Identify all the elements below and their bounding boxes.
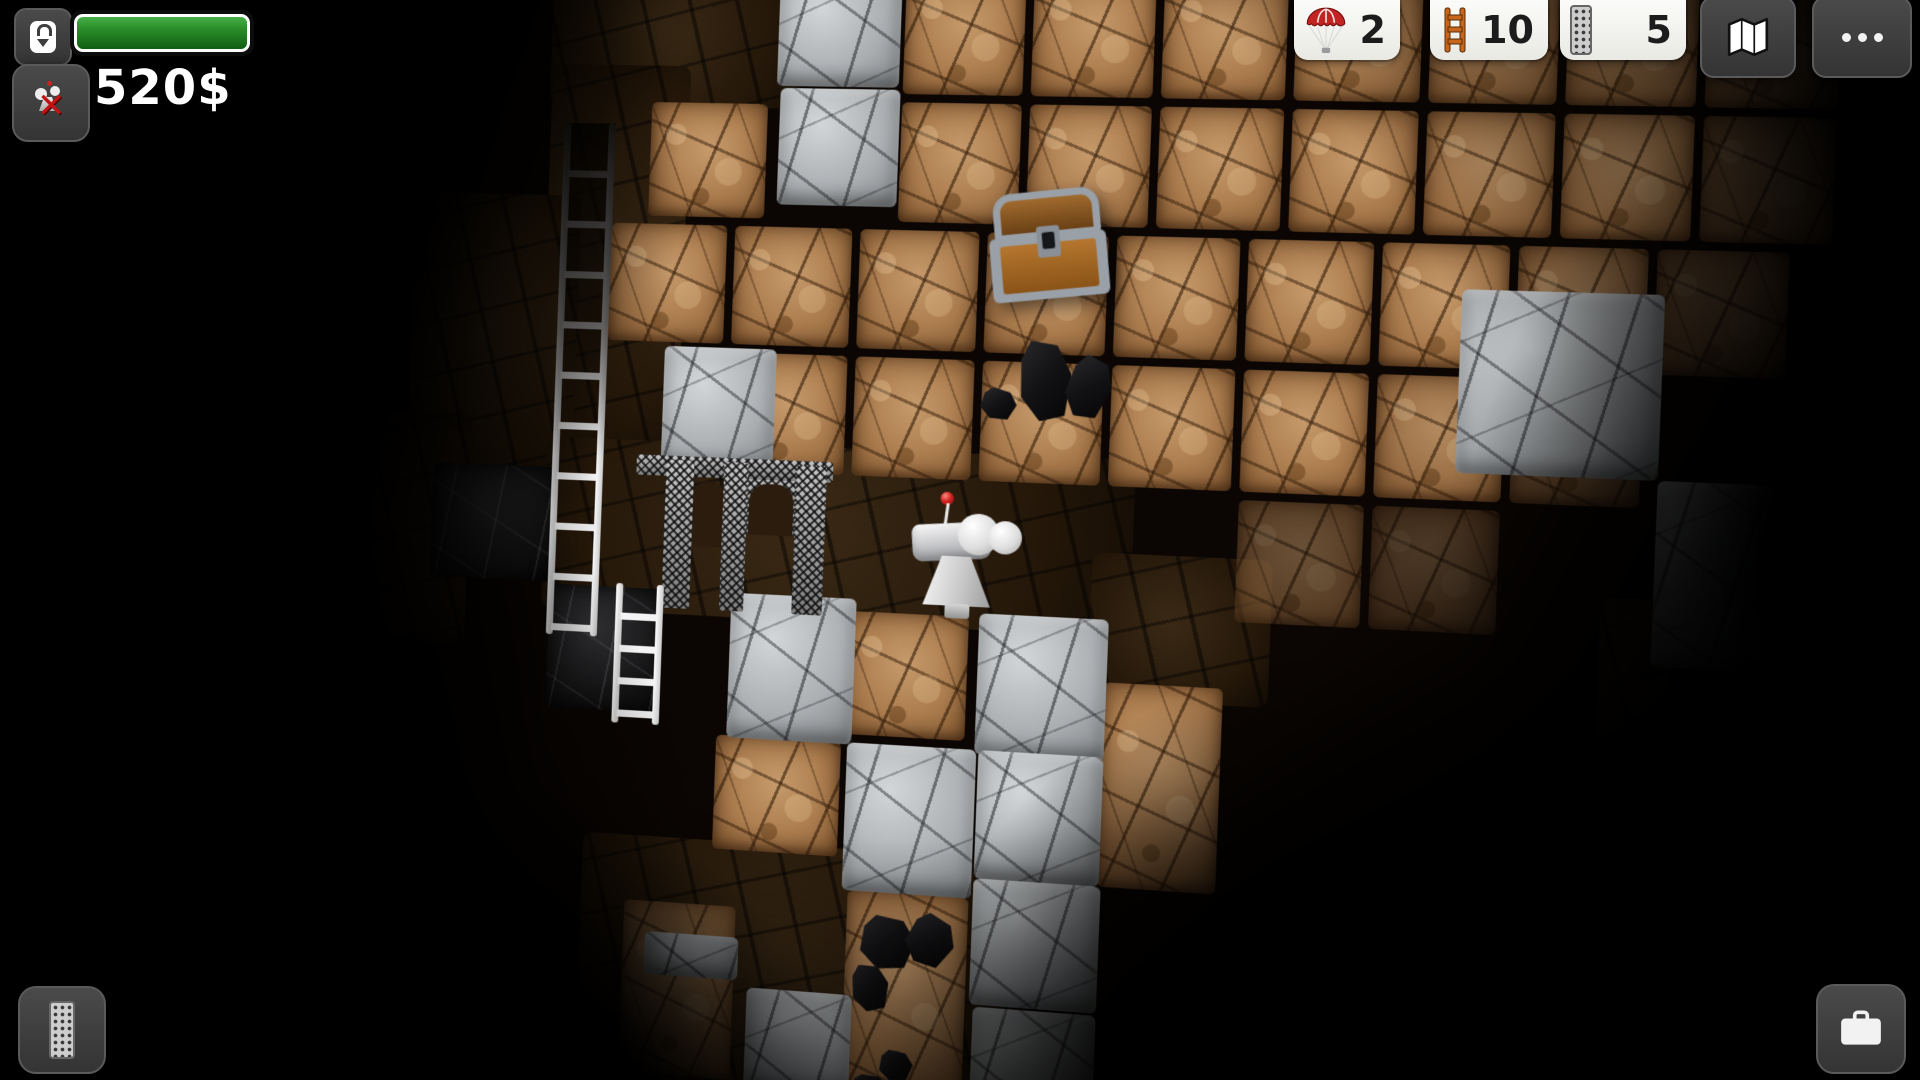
support-counter: 5	[1560, 0, 1686, 60]
ellipsis-icon	[1842, 33, 1883, 42]
lock-button[interactable]	[14, 8, 72, 66]
health-bar	[70, 10, 254, 56]
hud-overlay: ✕ 520$ 2 10 5	[0, 0, 1920, 1080]
briefcase-icon	[1838, 1009, 1884, 1049]
map-button[interactable]	[1700, 0, 1796, 78]
map-icon	[1725, 16, 1771, 58]
inventory-button[interactable]	[1816, 984, 1906, 1074]
support-beam-icon	[1570, 5, 1592, 55]
parachute-count: 2	[1356, 8, 1386, 52]
ladder-icon	[1440, 6, 1470, 54]
parachute-counter: 2	[1294, 0, 1400, 60]
dismiss-robot-button[interactable]: ✕	[12, 64, 90, 142]
parachute-icon	[1304, 6, 1348, 54]
money-amount: 520$	[94, 60, 232, 116]
ladder-counter: 10	[1430, 0, 1548, 60]
robot-cancel-icon: ✕	[29, 81, 73, 125]
ladder-count: 10	[1478, 8, 1534, 52]
support-count: 5	[1600, 8, 1672, 52]
place-support-button[interactable]	[18, 986, 106, 1074]
support-beam-icon	[49, 1001, 75, 1059]
lock-icon	[30, 21, 56, 53]
game-screen: ✕ 520$ 2 10 5	[0, 0, 1920, 1080]
more-options-button[interactable]	[1812, 0, 1912, 78]
health-bar-fill	[74, 14, 250, 52]
